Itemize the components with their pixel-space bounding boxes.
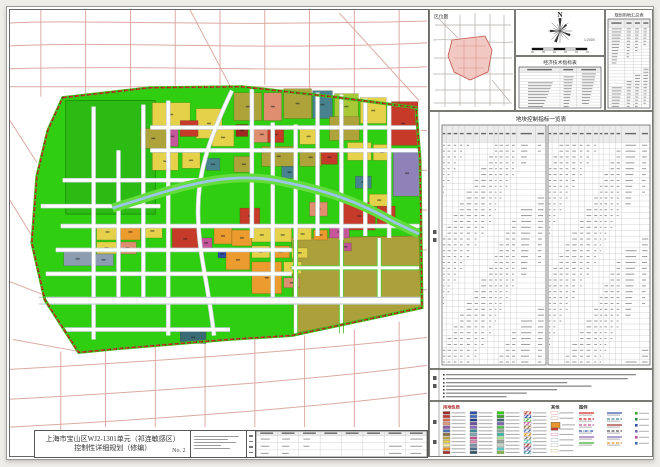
legend-panel: 用地性质 其他 图例 <box>429 401 653 457</box>
legend-header-other: 其他 <box>551 404 560 411</box>
plot-control-table: 地块控制指标一览表 <box>430 112 652 368</box>
drawing-title-line1: 上海市宝山区WJ2-1301单元（祁连敏感区） <box>35 435 190 444</box>
title-block-notes <box>191 431 247 457</box>
location-map-panel: 区位图 <box>429 9 515 111</box>
notes-lines <box>430 370 652 400</box>
plot-control-panel: 地块控制指标一览表 <box>429 111 653 369</box>
econ-table-title: 经济技术指标表 <box>543 59 577 66</box>
compass-rose: N 1:2000 <box>516 10 604 55</box>
drawing-title-line2: 控制性详细规划（修编） <box>35 444 190 453</box>
legend: 用地性质 其他 图例 <box>430 402 652 456</box>
notes-panel <box>429 369 653 401</box>
scale-ratio-label: 1:2000 <box>584 38 595 42</box>
econ-indicators-table: 经济技术指标表 <box>516 57 604 110</box>
olive-landuse-zone <box>292 236 421 334</box>
drawing-sheet: 上海市宝山区WJ2-1301单元（祁连敏感区） 控制性详细规划（修编） No. … <box>6 6 654 460</box>
econ-indicators-panel: 经济技术指标表 <box>515 56 605 111</box>
north-label: N <box>557 11 562 19</box>
legend-header-symbols: 图例 <box>579 404 587 411</box>
compass-panel: N 1:2000 <box>515 9 605 56</box>
signature-table-label <box>247 431 256 457</box>
title-block: 上海市宝山区WJ2-1301单元（祁连敏感区） 控制性详细规划（修编） No. … <box>34 430 428 458</box>
signature-grid <box>256 431 427 457</box>
master-plan-map <box>9 9 429 457</box>
signature-table <box>247 431 427 457</box>
plot-control-title: 地块控制指标一览表 <box>516 115 567 123</box>
location-map-title: 区位图 <box>434 13 449 20</box>
location-map: 区位图 <box>430 10 514 110</box>
landuse-summary-table: 规划用地汇总表 <box>606 10 652 110</box>
legend-header-landuse: 用地性质 <box>443 404 461 411</box>
plan-sheet-stage: 上海市宝山区WJ2-1301单元（祁连敏感区） 控制性详细规划（修编） No. … <box>0 0 660 467</box>
drawing-title: 上海市宝山区WJ2-1301单元（祁连敏感区） 控制性详细规划（修编） No. … <box>35 431 191 457</box>
summary-table-title: 规划用地汇总表 <box>614 12 644 19</box>
landuse-summary-panel: 规划用地汇总表 <box>605 9 653 111</box>
sheet-number: No. 2 <box>172 448 185 456</box>
